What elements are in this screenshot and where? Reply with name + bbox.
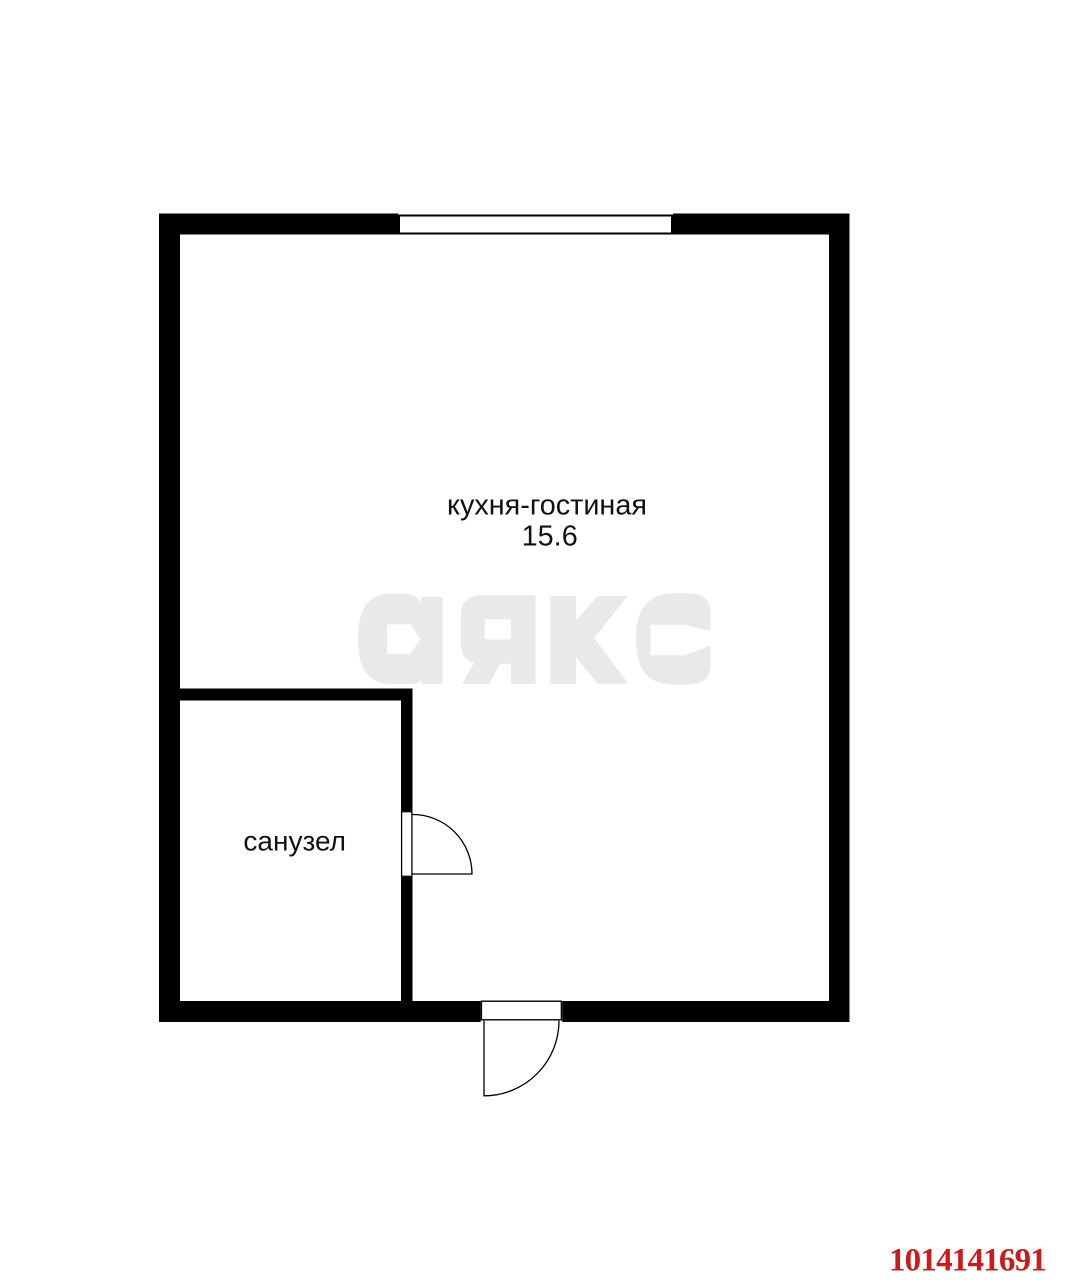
svg-text:1014141691: 1014141691 — [889, 1243, 1046, 1279]
svg-text:15.6: 15.6 — [522, 521, 578, 553]
svg-text:санузел: санузел — [243, 826, 346, 857]
svg-text:кухня-гостиная: кухня-гостиная — [447, 489, 647, 521]
